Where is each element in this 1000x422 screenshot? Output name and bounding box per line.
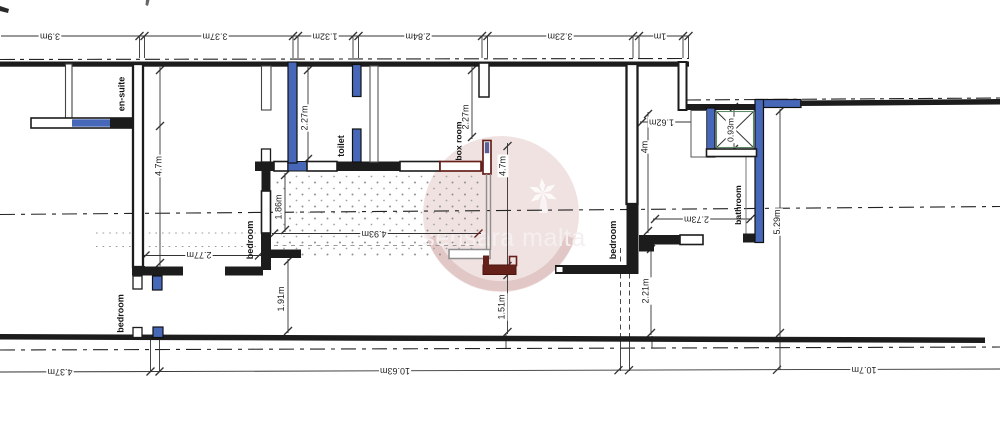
svg-text:1.51m: 1.51m	[496, 294, 506, 319]
svg-text:1.91m: 1.91m	[276, 286, 286, 311]
svg-text:bedroom: bedroom	[608, 221, 618, 260]
svg-text:4.7m: 4.7m	[497, 156, 507, 176]
svg-text:3.23m: 3.23m	[547, 32, 572, 42]
svg-text:1m: 1m	[654, 32, 667, 42]
svg-text:bedroom: bedroom	[115, 294, 125, 333]
svg-text:10.63m: 10.63m	[380, 366, 410, 376]
svg-text:en-suite: en-suite	[116, 77, 126, 112]
svg-text:4.37m: 4.37m	[47, 367, 72, 377]
svg-text:toilet: toilet	[336, 135, 346, 157]
svg-text:2.27m: 2.27m	[299, 105, 309, 130]
svg-text:2.84m: 2.84m	[405, 32, 430, 42]
svg-text:bedroom: bedroom	[245, 221, 255, 260]
svg-text:1.62m: 1.62m	[649, 118, 674, 128]
svg-text:2.77m: 2.77m	[186, 250, 211, 260]
svg-text:2.21m: 2.21m	[640, 278, 650, 303]
svg-text:3.37m: 3.37m	[202, 32, 227, 42]
svg-text:4m: 4m	[639, 141, 649, 154]
svg-text:1.32m: 1.32m	[312, 32, 337, 42]
svg-text:1.86m: 1.86m	[273, 194, 283, 219]
svg-text:box room: box room	[453, 121, 463, 161]
svg-text:5.29m: 5.29m	[772, 209, 782, 234]
svg-text:3.9m: 3.9m	[40, 32, 60, 42]
svg-text:4.7m: 4.7m	[153, 156, 163, 176]
svg-text:10.7m: 10.7m	[851, 365, 876, 375]
svg-text:2.73m: 2.73m	[684, 215, 709, 225]
svg-text:bathroom: bathroom	[733, 185, 743, 225]
svg-text:4.93m: 4.93m	[361, 229, 386, 239]
svg-text:0.93m: 0.93m	[725, 118, 735, 142]
